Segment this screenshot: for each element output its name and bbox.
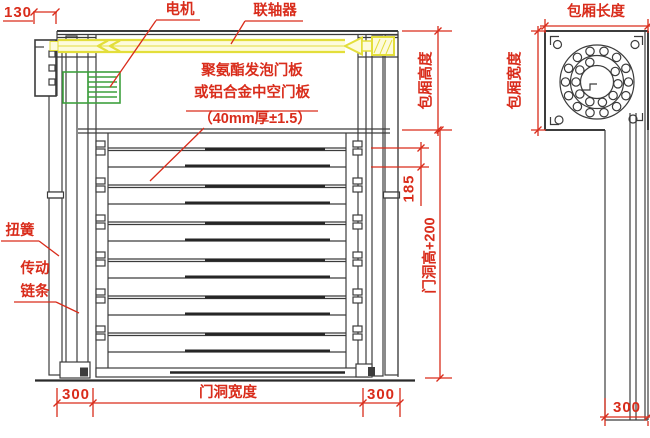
drive-chain-label-line2: 链条 [15, 284, 55, 301]
door-opening-height-label: 门洞高+200 [423, 210, 440, 302]
technical-drawing-canvas: 130 电机 联轴器 聚氨酯发泡门板 或铝合金中空门板 （40mm厚±1.5） … [0, 0, 650, 438]
drive-chain-label-line1: 传动 [15, 261, 55, 278]
dim-185-label: 185 [401, 171, 418, 207]
motor-label: 电机 [158, 2, 202, 19]
motor-outline [63, 72, 120, 103]
box-width-label: 包厢宽度 [508, 47, 525, 115]
side-view [545, 31, 648, 420]
torsion-spring-label: 扭簧 [2, 223, 38, 240]
door-opening-width-label: 门洞宽度 [190, 385, 266, 402]
rolled-curtain [560, 45, 634, 119]
dim-300-bottom-right: 300 [362, 386, 400, 403]
dim-300-side: 300 [606, 399, 648, 416]
coupling-label: 联轴器 [244, 3, 306, 20]
technical-drawing [0, 0, 650, 438]
roller-shaft [50, 37, 394, 55]
panel-spec-line1: 聚氨酯发泡门板 [197, 63, 307, 80]
right-guide-rail [372, 35, 400, 376]
box-length-label: 包厢长度 [552, 4, 640, 21]
box-height-label: 包厢高度 [419, 47, 436, 115]
front-view [35, 31, 415, 381]
panel-spec-line2: 或铝合金中空门板 [189, 85, 315, 102]
dim-130-label: 130 [2, 4, 34, 21]
panel-spec-line3: （40mm厚±1.5） [196, 111, 314, 128]
shaft-coupling [345, 37, 394, 55]
dim-300-bottom-left: 300 [57, 386, 95, 403]
